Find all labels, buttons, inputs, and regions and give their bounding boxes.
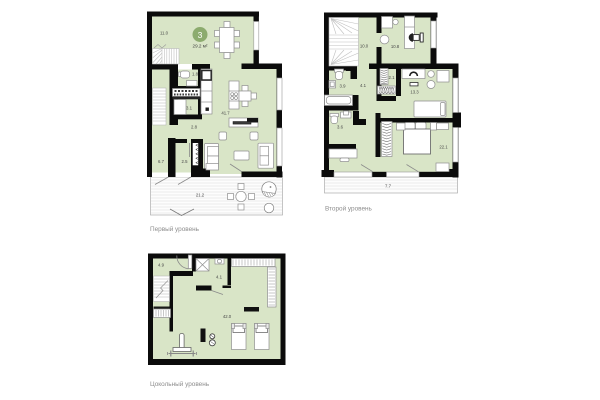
svg-text:Первый уровень: Первый уровень — [150, 225, 200, 233]
svg-text:3: 3 — [198, 30, 203, 40]
svg-text:10.0: 10.0 — [360, 44, 369, 49]
svg-text:13.3: 13.3 — [410, 90, 419, 95]
svg-text:Цокольный уровень: Цокольный уровень — [150, 380, 210, 388]
svg-text:2.1: 2.1 — [389, 75, 396, 80]
svg-text:22.1: 22.1 — [439, 145, 448, 150]
svg-text:6.7: 6.7 — [158, 159, 165, 164]
svg-text:10.8: 10.8 — [391, 44, 400, 49]
svg-text:41.7: 41.7 — [221, 111, 230, 116]
svg-text:11.0: 11.0 — [160, 31, 169, 36]
svg-text:1.8: 1.8 — [192, 72, 199, 77]
svg-text:3.6: 3.6 — [337, 125, 344, 130]
svg-text:2.5: 2.5 — [182, 159, 189, 164]
svg-text:4.9: 4.9 — [158, 263, 165, 268]
svg-text:4.1: 4.1 — [360, 83, 367, 88]
svg-text:29.2 м²: 29.2 м² — [193, 44, 208, 49]
svg-text:4.1: 4.1 — [216, 275, 223, 280]
svg-text:3.1: 3.1 — [186, 106, 193, 111]
svg-text:3.9: 3.9 — [340, 84, 347, 89]
svg-text:Второй уровень: Второй уровень — [325, 205, 373, 213]
svg-text:2.8: 2.8 — [191, 125, 198, 130]
svg-text:21.2: 21.2 — [196, 193, 205, 198]
svg-text:7.7: 7.7 — [385, 184, 392, 189]
svg-text:42.0: 42.0 — [223, 314, 232, 319]
